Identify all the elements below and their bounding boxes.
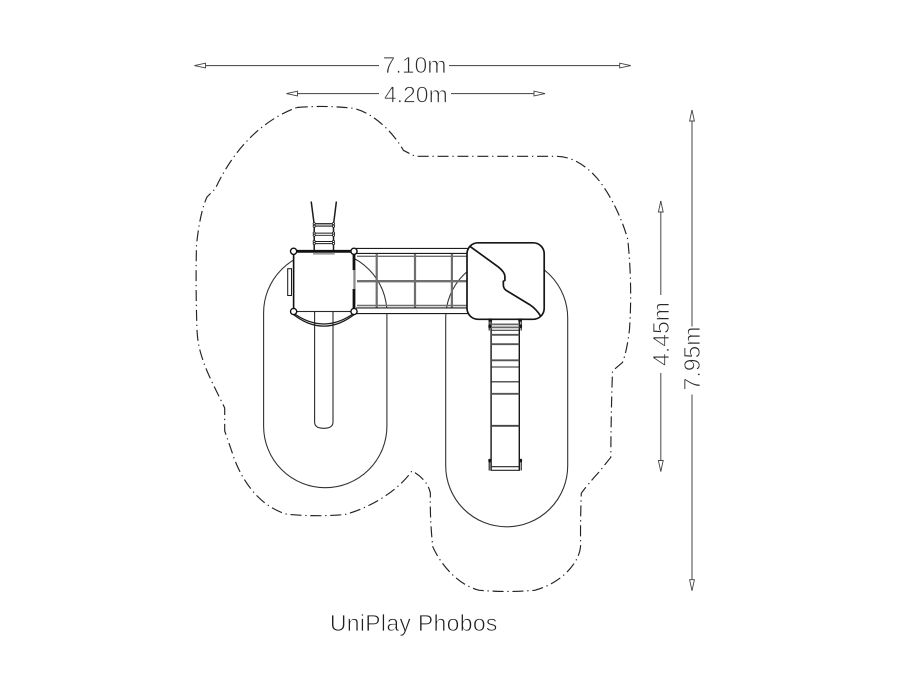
svg-text:4.20m: 4.20m (384, 81, 448, 107)
svg-text:7.10m: 7.10m (383, 52, 447, 78)
svg-text:7.95m: 7.95m (679, 327, 705, 391)
svg-text:4.45m: 4.45m (648, 302, 674, 366)
svg-text:UniPlay Phobos: UniPlay Phobos (330, 610, 498, 636)
